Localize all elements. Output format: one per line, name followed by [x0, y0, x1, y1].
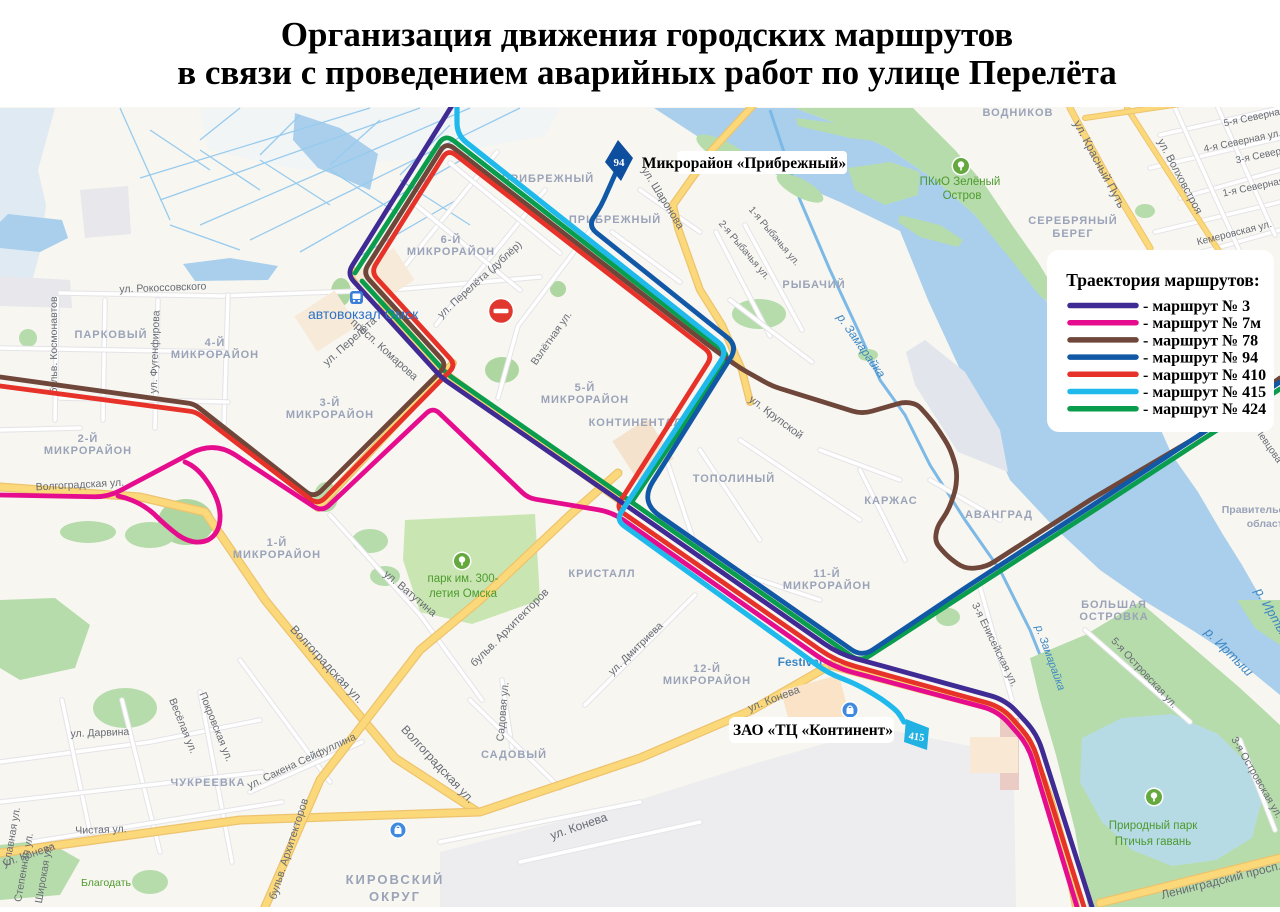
svg-text:Правительство: Правительство	[1222, 504, 1280, 516]
svg-text:94: 94	[614, 157, 626, 169]
svg-text:- маршрут № 415: - маршрут № 415	[1143, 384, 1266, 401]
svg-text:КАРЖАС: КАРЖАС	[864, 495, 917, 507]
svg-text:БЕРЕГ: БЕРЕГ	[1052, 228, 1093, 240]
svg-text:- маршрут № 424: - маршрут № 424	[1143, 401, 1266, 418]
svg-text:Благодать: Благодать	[81, 877, 131, 889]
svg-text:МИКРОРАЙОН: МИКРОРАЙОН	[286, 408, 374, 421]
svg-text:САДОВЫЙ: САДОВЫЙ	[481, 748, 547, 761]
svg-text:МИКРОРАЙОН: МИКРОРАЙОН	[171, 348, 259, 361]
svg-text:6-Й: 6-Й	[441, 233, 462, 246]
svg-text:ТОПОЛИНЫЙ: ТОПОЛИНЫЙ	[693, 472, 775, 485]
svg-text:АВАНГРАД: АВАНГРАД	[965, 509, 1033, 521]
svg-text:в связи с проведением аварийны: в связи с проведением аварийных работ по…	[177, 53, 1117, 92]
svg-text:МИКРОРАЙОН: МИКРОРАЙОН	[541, 393, 629, 406]
svg-text:5-Й: 5-Й	[575, 381, 596, 394]
svg-text:МИКРОРАЙОН: МИКРОРАЙОН	[663, 674, 751, 687]
svg-text:ЗАО «ТЦ «Континент»: ЗАО «ТЦ «Континент»	[733, 722, 893, 739]
svg-text:МИКРОРАЙОН: МИКРОРАЙОН	[783, 579, 871, 592]
svg-text:ПКиО Зелёный: ПКиО Зелёный	[920, 176, 1001, 188]
svg-text:ЧУКРЕЕВКА: ЧУКРЕЕВКА	[171, 777, 246, 789]
svg-text:ВОДНИКОВ: ВОДНИКОВ	[983, 107, 1054, 119]
svg-text:Птичья гавань: Птичья гавань	[1115, 836, 1191, 848]
svg-text:БОЛЬШАЯ: БОЛЬШАЯ	[1081, 599, 1147, 611]
svg-text:- маршрут № 410: - маршрут № 410	[1143, 367, 1266, 384]
svg-text:МИКРОРАЙОН: МИКРОРАЙОН	[233, 548, 321, 561]
svg-text:СЕРЕБРЯНЫЙ: СЕРЕБРЯНЫЙ	[1028, 214, 1117, 227]
svg-text:Организация движения городских: Организация движения городских маршрутов	[281, 15, 1013, 54]
svg-text:11-Й: 11-Й	[813, 567, 840, 580]
svg-text:ОСТРОВКА: ОСТРОВКА	[1079, 611, 1148, 623]
svg-text:Остров: Остров	[943, 190, 982, 202]
svg-text:12-Й: 12-Й	[693, 662, 721, 675]
svg-text:МИКРОРАЙОН: МИКРОРАЙОН	[407, 245, 495, 258]
svg-text:4-Й: 4-Й	[205, 336, 226, 349]
svg-text:Природный парк: Природный парк	[1109, 820, 1199, 832]
svg-text:ул. Дарвина: ул. Дарвина	[70, 726, 129, 740]
svg-text:бульв. Космонавтов: бульв. Космонавтов	[48, 296, 60, 394]
svg-text:- маршрут № 94: - маршрут № 94	[1143, 350, 1258, 367]
svg-text:415: 415	[908, 731, 925, 744]
svg-text:3-Й: 3-Й	[320, 396, 341, 409]
svg-text:Чистая ул.: Чистая ул.	[75, 823, 127, 837]
svg-text:ПРИБРЕЖНЫЙ: ПРИБРЕЖНЫЙ	[569, 213, 661, 226]
svg-text:- маршрут № 3: - маршрут № 3	[1143, 298, 1250, 315]
svg-text:РЫБАЧИЙ: РЫБАЧИЙ	[782, 278, 845, 291]
svg-text:Траектория маршрутов:: Траектория маршрутов:	[1066, 270, 1259, 290]
svg-text:- маршрут № 78: - маршрут № 78	[1143, 332, 1258, 349]
svg-text:ОКРУГ: ОКРУГ	[369, 889, 421, 904]
svg-text:2-Й: 2-Й	[78, 432, 99, 445]
svg-text:КРИСТАЛЛ: КРИСТАЛЛ	[568, 568, 635, 580]
svg-text:ПАРКОВЫЙ: ПАРКОВЫЙ	[74, 328, 147, 341]
svg-text:области: области	[1247, 518, 1280, 530]
svg-text:Микрорайон «Прибрежный»: Микрорайон «Прибрежный»	[642, 155, 846, 172]
svg-text:МИКРОРАЙОН: МИКРОРАЙОН	[44, 444, 132, 457]
svg-text:летия Омска: летия Омска	[429, 588, 498, 600]
svg-text:- маршрут № 7м: - маршрут № 7м	[1143, 315, 1261, 332]
svg-text:КИРОВСКИЙ: КИРОВСКИЙ	[346, 872, 445, 887]
svg-text:1-Й: 1-Й	[267, 536, 288, 549]
svg-text:парк им. 300-: парк им. 300-	[428, 573, 499, 585]
svg-text:автовокзал Омск: автовокзал Омск	[308, 306, 419, 322]
